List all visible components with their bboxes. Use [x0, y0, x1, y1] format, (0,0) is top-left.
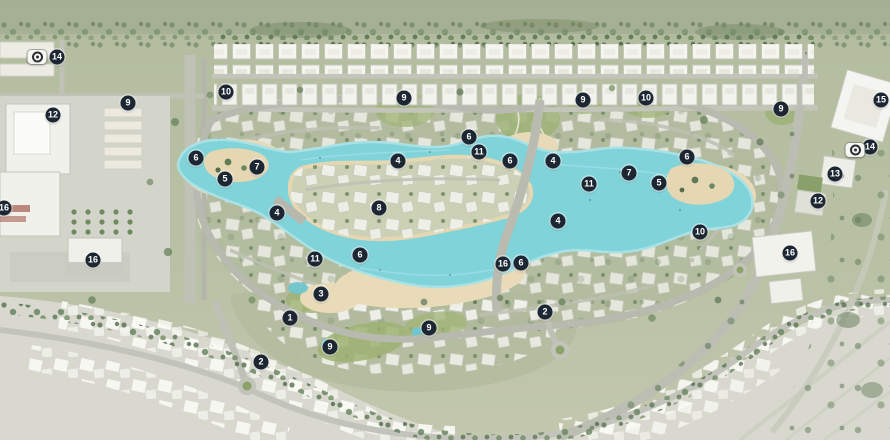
- map-marker-9[interactable]: 9: [774, 102, 789, 117]
- map-marker-7[interactable]: 7: [622, 166, 637, 181]
- map-marker-6[interactable]: 6: [353, 248, 368, 263]
- map-marker-7[interactable]: 7: [250, 160, 265, 175]
- map-illustration: [0, 0, 890, 440]
- map-marker-5[interactable]: 5: [218, 172, 233, 187]
- map-marker-11[interactable]: 11: [582, 177, 597, 192]
- map-marker-6[interactable]: 6: [680, 150, 695, 165]
- map-marker-4[interactable]: 4: [391, 154, 406, 169]
- map-marker-12[interactable]: 12: [46, 108, 61, 123]
- map-marker-14[interactable]: 14: [863, 140, 878, 155]
- villa-row-second: [214, 80, 814, 106]
- map-marker-10[interactable]: 10: [219, 85, 234, 100]
- map-marker-16[interactable]: 16: [783, 246, 798, 261]
- map-marker-15[interactable]: 15: [874, 93, 889, 108]
- map-marker-8[interactable]: 8: [372, 201, 387, 216]
- map-marker-9[interactable]: 9: [422, 321, 437, 336]
- right-pool-island: [666, 163, 734, 205]
- villa-row-north: [214, 44, 814, 74]
- camera-icon[interactable]: [846, 143, 865, 157]
- map-marker-2[interactable]: 2: [254, 355, 269, 370]
- map-marker-6[interactable]: 6: [189, 151, 204, 166]
- map-marker-12[interactable]: 12: [811, 194, 826, 209]
- map-marker-11[interactable]: 11: [472, 145, 487, 160]
- map-marker-10[interactable]: 10: [693, 225, 708, 240]
- map-marker-10[interactable]: 10: [639, 91, 654, 106]
- map-marker-2[interactable]: 2: [538, 305, 553, 320]
- map-marker-6[interactable]: 6: [503, 154, 518, 169]
- map-marker-4[interactable]: 4: [546, 154, 561, 169]
- map-marker-5[interactable]: 5: [652, 176, 667, 191]
- map-marker-16[interactable]: 16: [496, 257, 511, 272]
- map-marker-13[interactable]: 13: [828, 167, 843, 182]
- masterplan-map: 1410910915991261411664467713551112816441…: [0, 0, 890, 440]
- camera-icon[interactable]: [28, 50, 47, 64]
- map-marker-3[interactable]: 3: [314, 287, 329, 302]
- map-marker-9[interactable]: 9: [121, 96, 136, 111]
- map-marker-16[interactable]: 16: [86, 253, 101, 268]
- map-marker-9[interactable]: 9: [323, 340, 338, 355]
- map-marker-9[interactable]: 9: [576, 93, 591, 108]
- map-marker-9[interactable]: 9: [397, 91, 412, 106]
- map-marker-6[interactable]: 6: [514, 256, 529, 271]
- map-marker-4[interactable]: 4: [270, 206, 285, 221]
- map-marker-6[interactable]: 6: [462, 130, 477, 145]
- map-marker-4[interactable]: 4: [551, 214, 566, 229]
- map-marker-14[interactable]: 14: [50, 50, 65, 65]
- map-marker-11[interactable]: 11: [308, 252, 323, 267]
- map-marker-1[interactable]: 1: [283, 311, 298, 326]
